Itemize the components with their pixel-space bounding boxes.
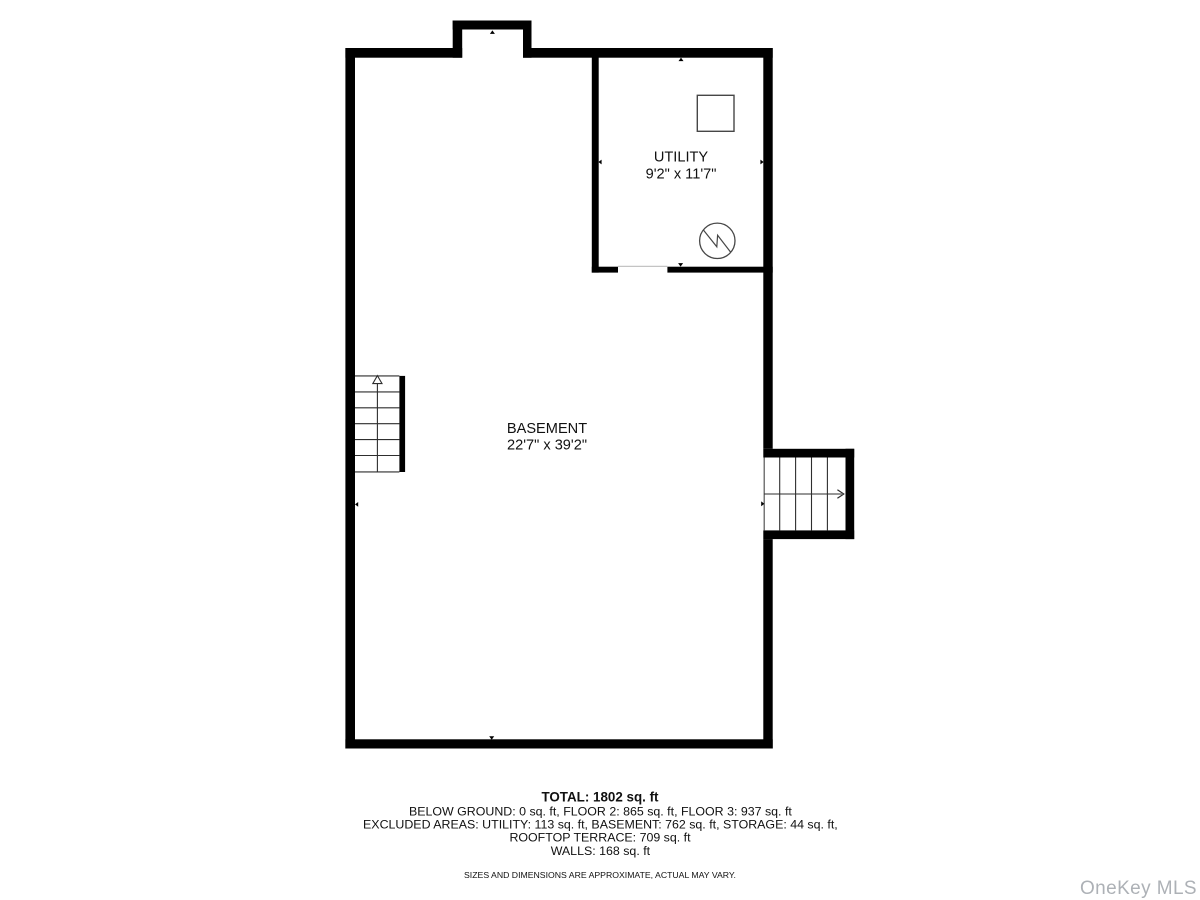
svg-text:TOTAL: 1802 sq. ft: TOTAL: 1802 sq. ft bbox=[541, 789, 659, 804]
svg-text:ROOFTOP TERRACE: 709 sq. ft: ROOFTOP TERRACE: 709 sq. ft bbox=[509, 831, 691, 845]
svg-text:9'2" x 11'7": 9'2" x 11'7" bbox=[646, 167, 717, 183]
svg-text:BELOW GROUND: 0 sq. ft, FLOOR: BELOW GROUND: 0 sq. ft, FLOOR 2: 865 sq.… bbox=[409, 804, 792, 818]
svg-text:WALLS: 168 sq. ft: WALLS: 168 sq. ft bbox=[551, 844, 651, 858]
svg-text:EXCLUDED AREAS: UTILITY: 113 s: EXCLUDED AREAS: UTILITY: 113 sq. ft, BAS… bbox=[363, 818, 838, 832]
svg-text:BASEMENT: BASEMENT bbox=[507, 421, 587, 437]
svg-text:UTILITY: UTILITY bbox=[654, 150, 709, 166]
svg-text:SIZES AND DIMENSIONS ARE APPRO: SIZES AND DIMENSIONS ARE APPROXIMATE, AC… bbox=[464, 870, 736, 880]
svg-text:OneKey MLS: OneKey MLS bbox=[1080, 878, 1197, 899]
svg-text:22'7" x 39'2": 22'7" x 39'2" bbox=[507, 438, 587, 454]
